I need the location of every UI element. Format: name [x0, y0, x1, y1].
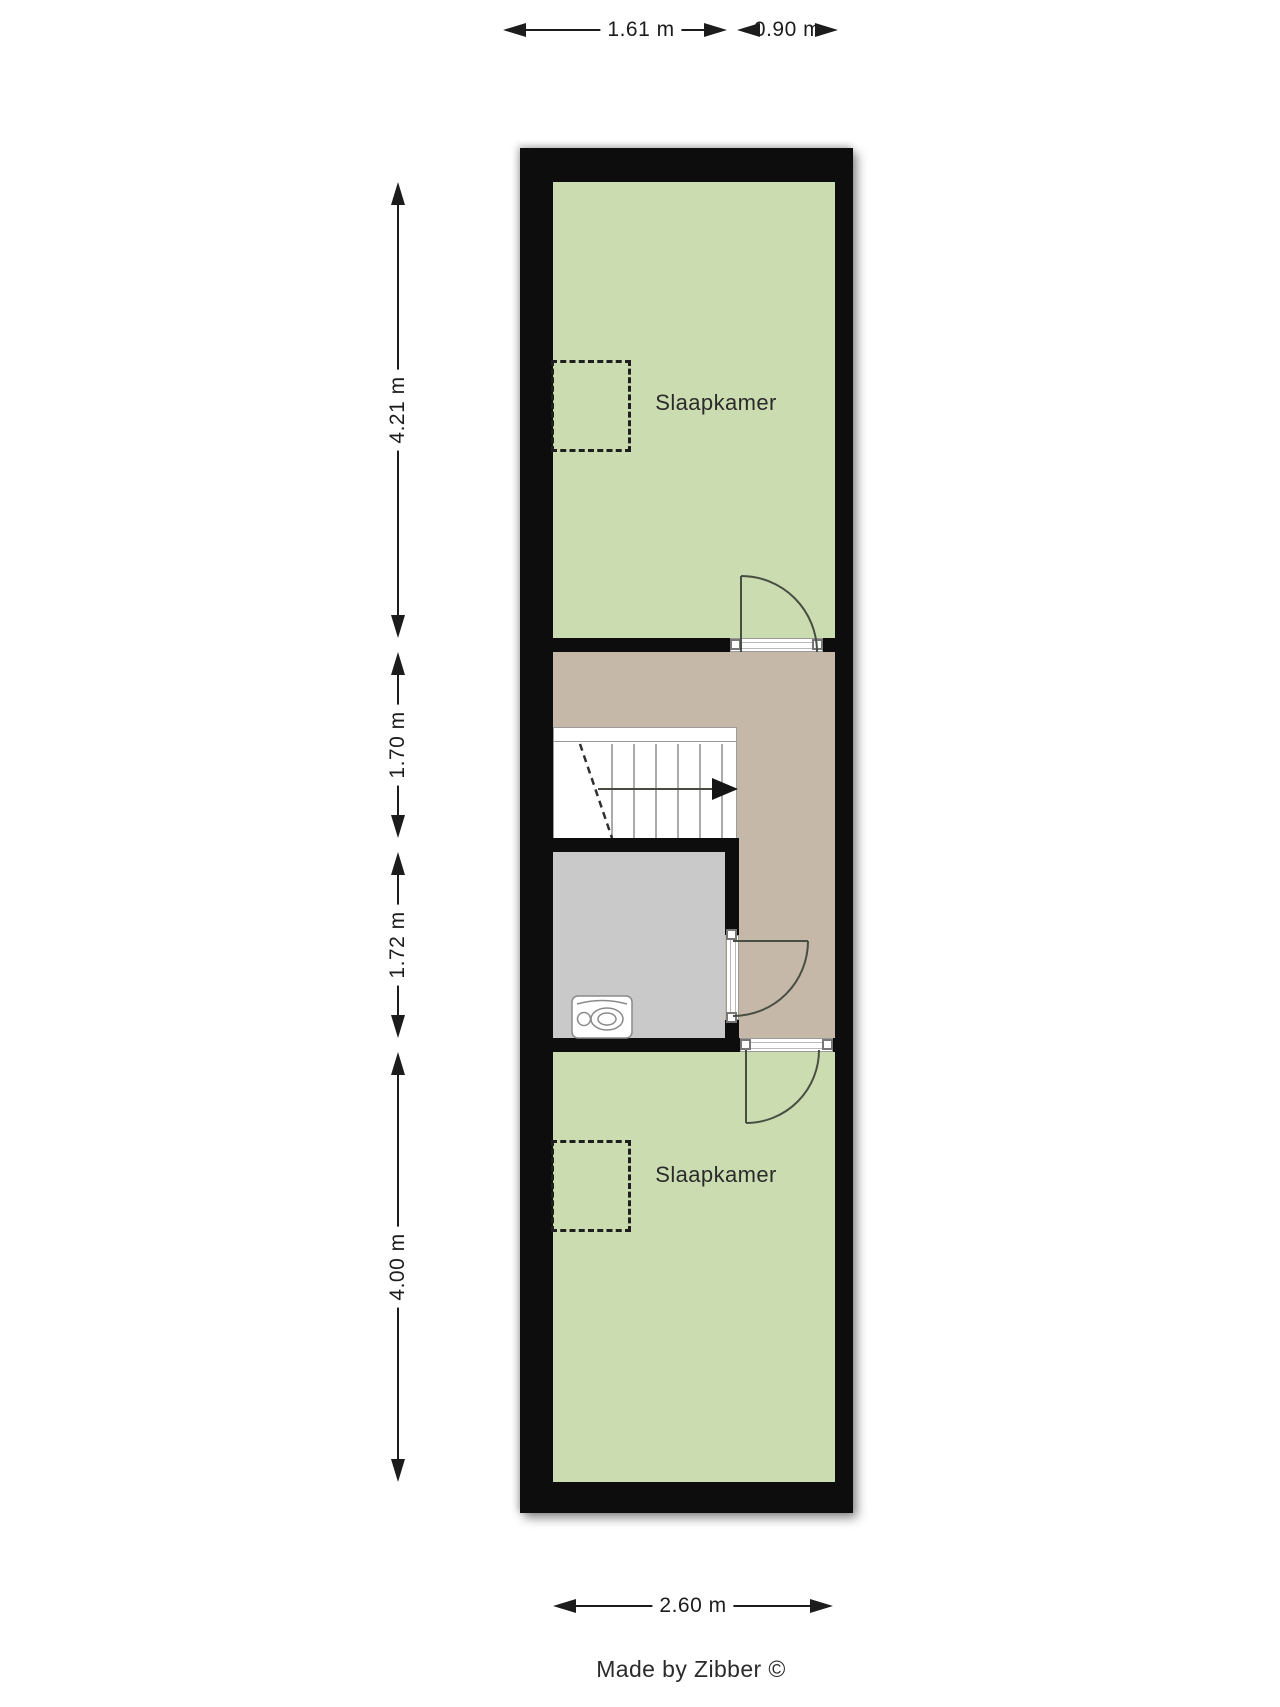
dimension-label: 4.21 m	[385, 369, 411, 450]
dimension-label: 1.70 m	[385, 704, 411, 785]
arrow-down-icon	[391, 615, 405, 638]
door-hinge-block	[740, 1039, 751, 1050]
arrow-right-icon	[704, 23, 727, 37]
room-bedroom-bottom	[553, 1052, 835, 1482]
dormer-dashed-box-bottom	[551, 1140, 631, 1232]
arrow-up-icon	[391, 1052, 405, 1075]
floorplan-outline: Slaapkamer Slaapkamer	[520, 148, 853, 1513]
credit-text: Made by Zibber ©	[346, 1656, 1036, 1683]
dimension-top-2: 0.90 m	[737, 18, 838, 42]
arrow-up-icon	[391, 182, 405, 205]
floorplan-canvas: 1.61 m 0.90 m 4.21 m 1.70 m 1.72 m 4.00 …	[0, 0, 1280, 1707]
arrow-down-icon	[391, 1459, 405, 1482]
door-threshold-toilet	[726, 935, 739, 1020]
door-threshold-bedroom-top	[730, 638, 823, 652]
door-hinge-block	[726, 1012, 737, 1023]
dormer-dashed-box-top	[551, 360, 631, 452]
wall-toilet-right-upper	[725, 838, 739, 935]
stairs-landing-edge	[553, 727, 737, 742]
door-threshold-bedroom-bottom	[740, 1038, 833, 1052]
stairs	[553, 727, 737, 840]
wall-hall-toilet	[553, 838, 739, 852]
arrow-left-icon	[737, 23, 760, 37]
door-hinge-block	[822, 1039, 833, 1050]
dimension-label: 4.00 m	[385, 1226, 411, 1307]
room-label-bedroom-bottom: Slaapkamer	[655, 1162, 776, 1188]
door-hinge-block	[812, 639, 823, 650]
arrow-up-icon	[391, 852, 405, 875]
arrow-right-icon	[810, 1599, 833, 1613]
arrow-up-icon	[391, 652, 405, 675]
door-hinge-block	[726, 929, 737, 940]
dimension-top-1: 1.61 m	[503, 18, 727, 42]
dimension-label: 1.61 m	[600, 17, 681, 43]
dimension-left-4: 4.00 m	[386, 1052, 410, 1482]
dimension-label: 1.72 m	[385, 904, 411, 985]
arrow-down-icon	[391, 815, 405, 838]
arrow-down-icon	[391, 1015, 405, 1038]
arrow-left-icon	[553, 1599, 576, 1613]
dimension-label: 2.60 m	[652, 1593, 733, 1619]
dimension-left-1: 4.21 m	[386, 182, 410, 638]
dimension-bottom: 2.60 m	[553, 1594, 833, 1618]
dimension-left-2: 1.70 m	[386, 652, 410, 838]
arrow-right-icon	[815, 23, 838, 37]
arrow-left-icon	[503, 23, 526, 37]
room-label-bedroom-top: Slaapkamer	[655, 390, 776, 416]
dimension-left-3: 1.72 m	[386, 852, 410, 1038]
room-toilet	[553, 852, 725, 1038]
door-hinge-block	[730, 639, 741, 650]
